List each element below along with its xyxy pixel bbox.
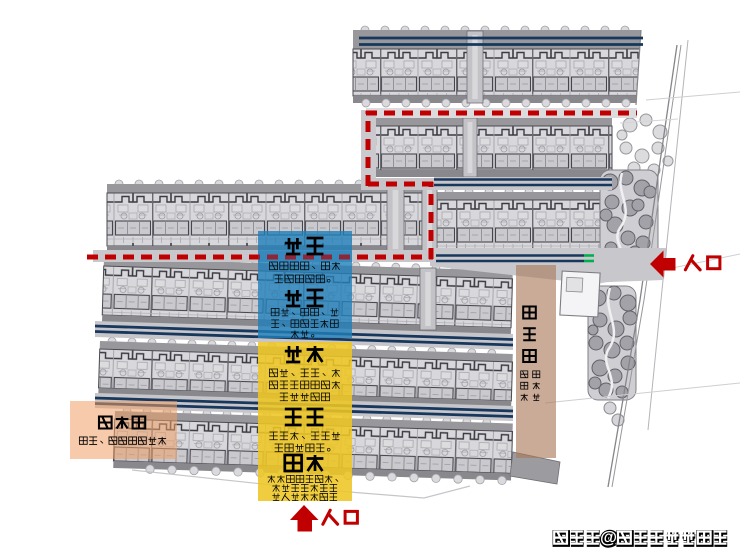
svg-text:@: @ xyxy=(600,527,617,547)
